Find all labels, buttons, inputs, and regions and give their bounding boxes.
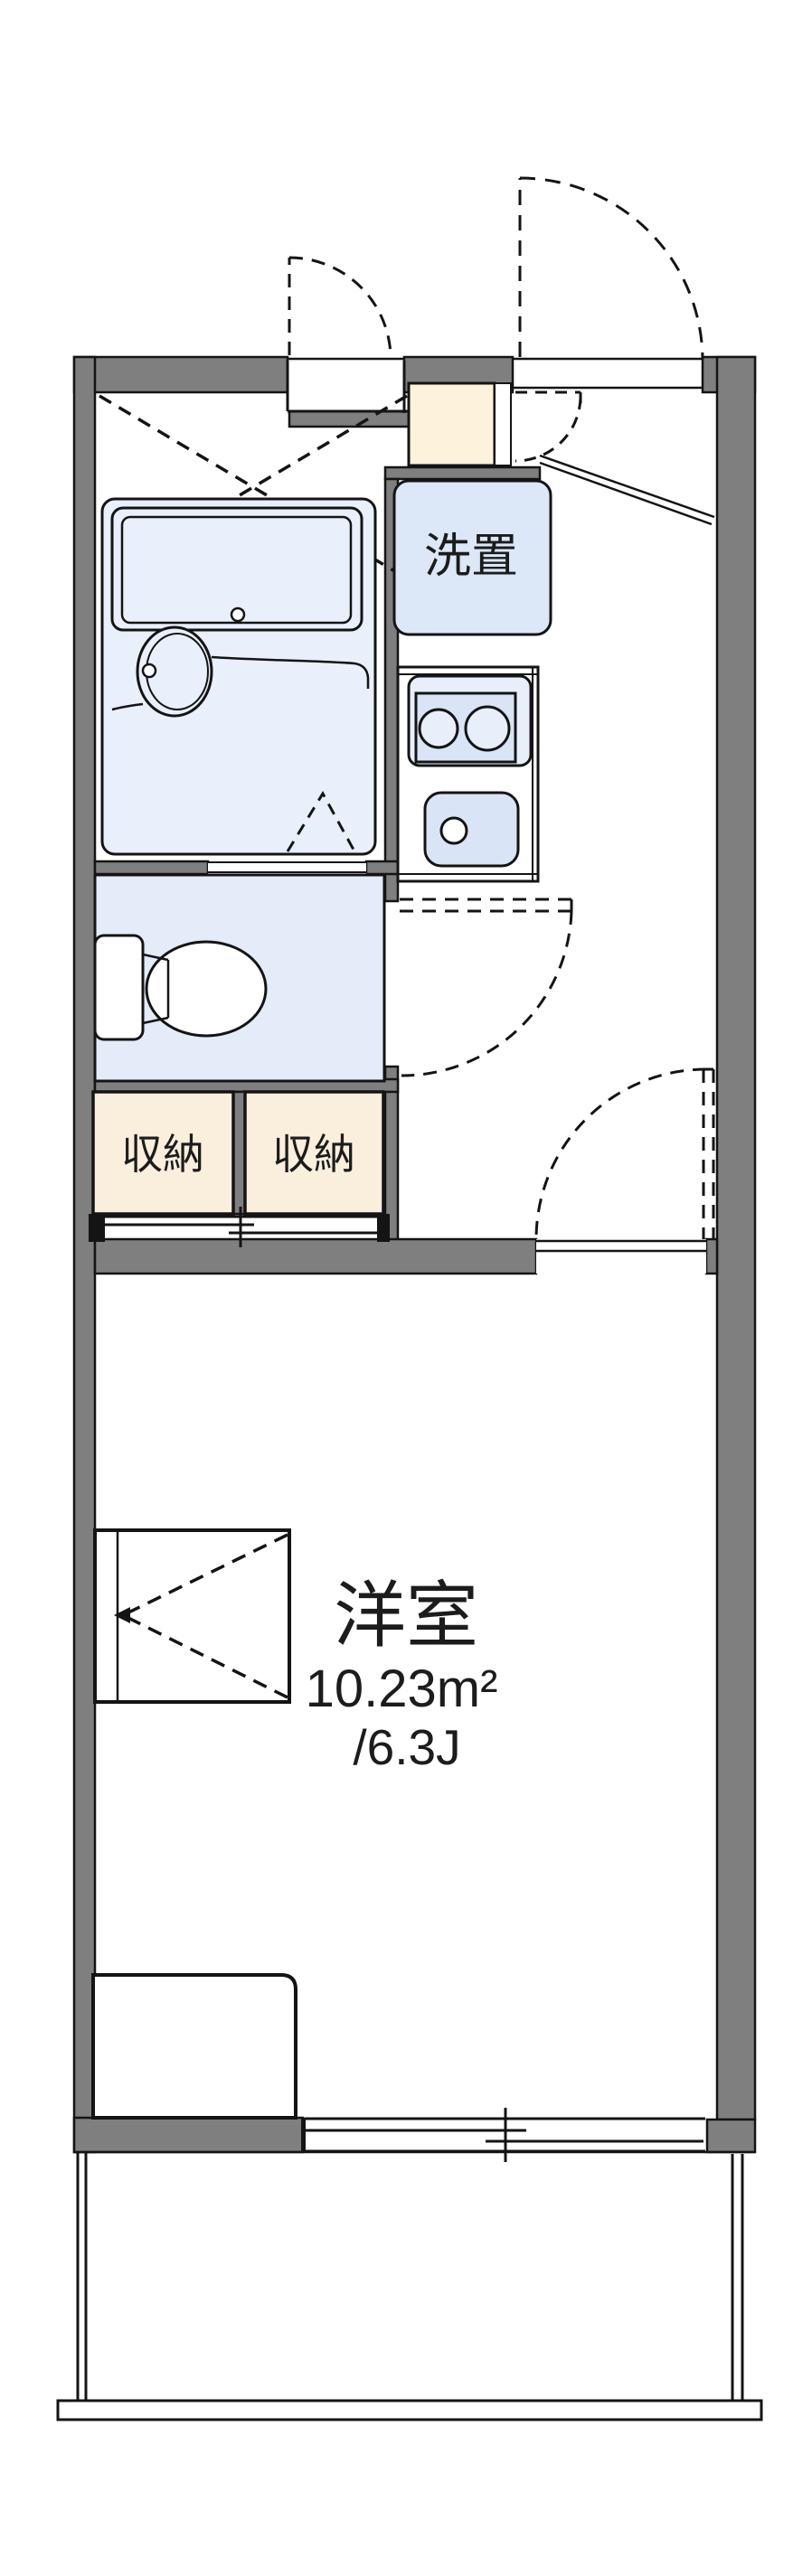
kitchen [398, 667, 538, 881]
storage-right-label: 収納 [272, 1131, 355, 1178]
cap-sliding-right [377, 1214, 390, 1242]
wall-top-left [74, 357, 288, 392]
burner-left-icon [420, 710, 458, 747]
sink-drain-icon [441, 818, 467, 843]
main-room-tatami-label: /6.3J [353, 1719, 460, 1775]
closet-box [95, 1530, 289, 1702]
toilet-bowl-icon [146, 942, 266, 1036]
storage-left-label: 収納 [121, 1131, 204, 1178]
bath-doorway [208, 861, 366, 874]
main-room-label: 洋室 [334, 1575, 478, 1656]
main-door-gap [536, 1239, 706, 1274]
washbasin-faucet-icon [143, 664, 156, 677]
main-room-area-label: 10.23m² [306, 1659, 498, 1718]
wall-storage-divider [233, 1092, 245, 1214]
toilet-room [95, 875, 384, 1081]
kitchen-sink-icon [425, 793, 518, 866]
wall-right [717, 357, 755, 2120]
shoe-cabinet [409, 383, 495, 465]
bed-icon [93, 1975, 296, 2118]
balcony-rail [58, 2401, 761, 2420]
floor-plan-page: 洗置 収納 収納 洋室 10.23m² /6.3J [0, 0, 812, 2576]
washer-label: 洗置 [424, 531, 518, 583]
wall-bottom-left [74, 2118, 303, 2152]
wall-bottom-right [707, 2120, 755, 2152]
wall-room-top-left [95, 1239, 536, 1274]
wall-bath-toilet-right [366, 861, 398, 874]
cabinet-side-compartment [495, 383, 511, 465]
main-room-doorway [536, 1239, 706, 1274]
wall-niche-stub [289, 411, 409, 427]
wall-washer-top-bar [385, 467, 540, 479]
burner-right-icon [466, 707, 509, 750]
wall-left [74, 357, 95, 2152]
wall-bath-toilet-left [95, 861, 208, 874]
cap-sliding-left [89, 1214, 105, 1242]
unit-bath [102, 499, 375, 854]
toilet-tank-icon [95, 935, 143, 1039]
tub-drain-icon [231, 608, 244, 621]
cap-window-left [301, 2118, 306, 2152]
floor-plan-svg: 洗置 収納 収納 洋室 10.23m² /6.3J [0, 0, 812, 2576]
wall-room-top-right-stub [706, 1239, 717, 1274]
